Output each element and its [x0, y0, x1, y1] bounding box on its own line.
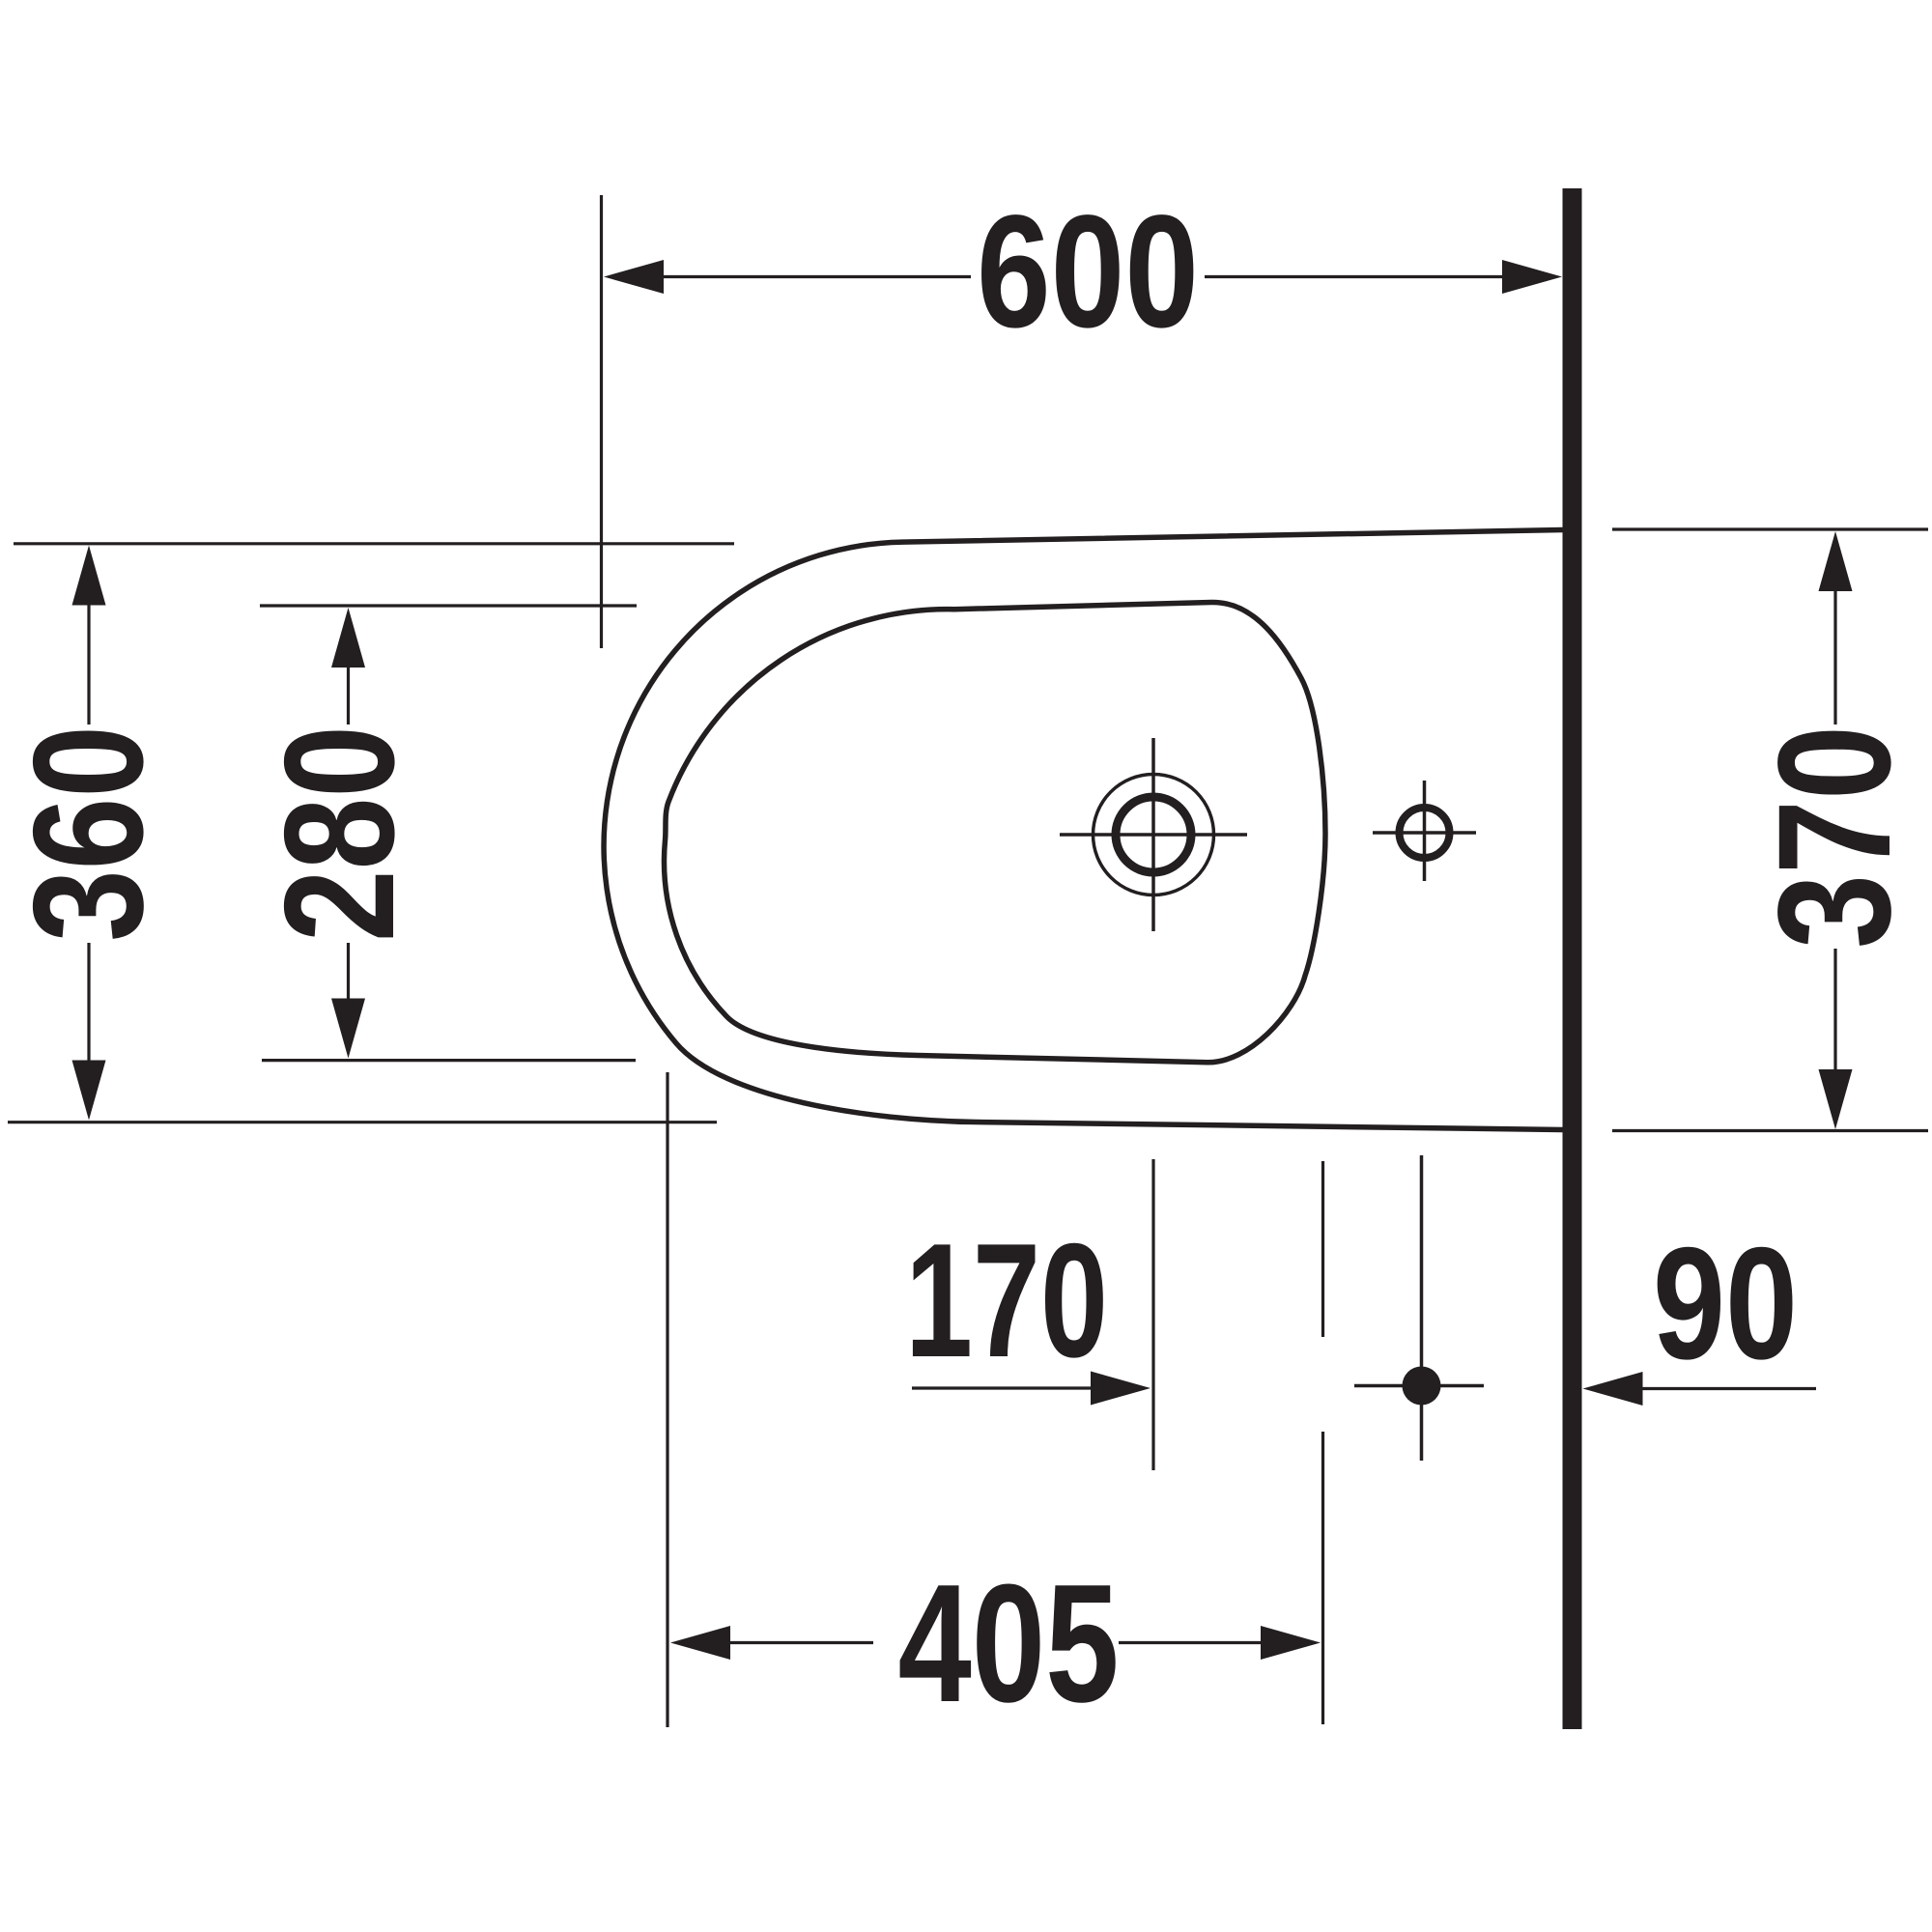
svg-text:405: 405: [898, 1548, 1120, 1737]
svg-text:90: 90: [1653, 1214, 1798, 1392]
svg-text:360: 360: [1, 725, 176, 942]
svg-text:280: 280: [252, 725, 427, 942]
svg-text:600: 600: [977, 183, 1199, 361]
svg-text:370: 370: [1746, 725, 1924, 949]
svg-text:170: 170: [905, 1209, 1108, 1391]
